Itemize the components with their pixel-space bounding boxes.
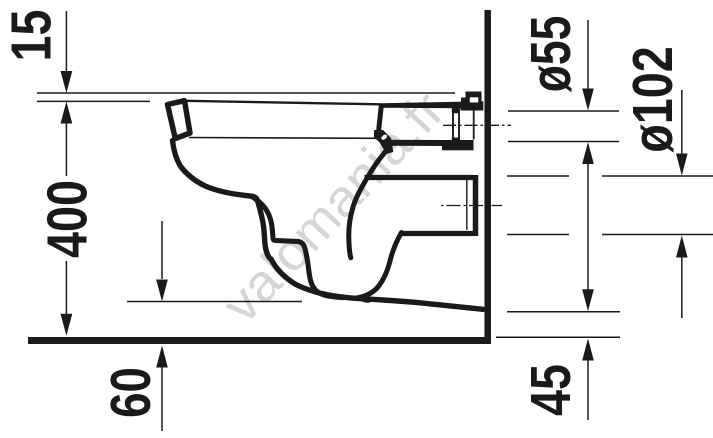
svg-text:400: 400 (36, 180, 99, 258)
svg-text:60: 60 (98, 367, 162, 418)
svg-text:ø55: ø55 (519, 16, 583, 93)
svg-text:ø102: ø102 (622, 46, 685, 153)
svg-text:45: 45 (520, 364, 583, 416)
svg-text:15: 15 (0, 10, 63, 62)
